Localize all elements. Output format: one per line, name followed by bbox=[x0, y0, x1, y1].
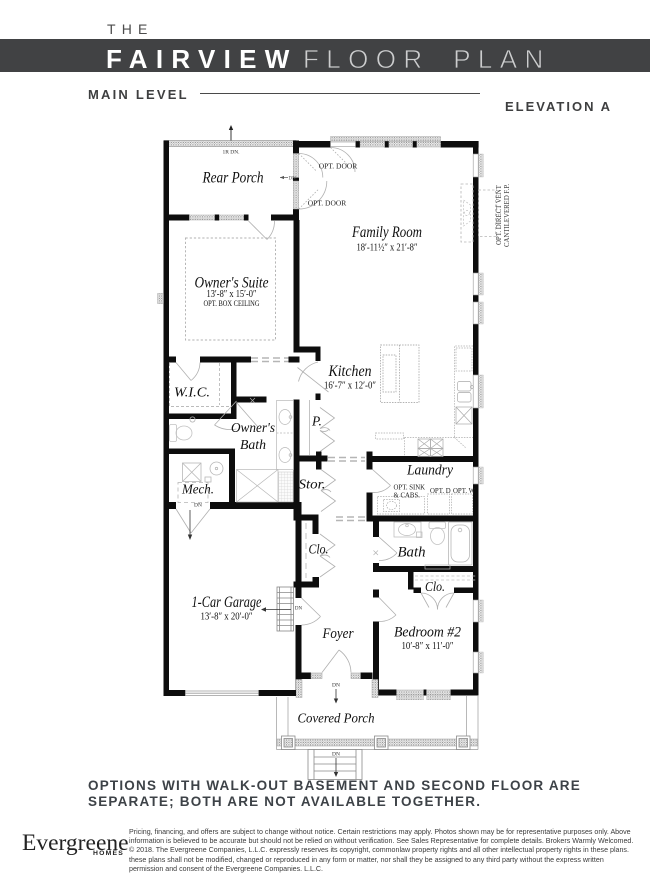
svg-text:Bedroom #2: Bedroom #2 bbox=[394, 625, 461, 641]
svg-text:DN: DN bbox=[332, 752, 340, 758]
svg-text:10′-8″ x 11′-0″: 10′-8″ x 11′-0″ bbox=[402, 641, 454, 652]
svg-text:OPT. BOX CEILING: OPT. BOX CEILING bbox=[204, 299, 260, 308]
svg-text:OPT. DOOR: OPT. DOOR bbox=[319, 162, 358, 171]
svg-text:Mech.: Mech. bbox=[181, 482, 214, 497]
svg-text:OPT. DOOR: OPT. DOOR bbox=[308, 199, 347, 208]
svg-text:Foyer: Foyer bbox=[322, 626, 354, 642]
svg-text:OPT. W: OPT. W bbox=[453, 488, 476, 495]
svg-text:16′-7″ x 12′-0″: 16′-7″ x 12′-0″ bbox=[324, 381, 376, 392]
svg-text:OPT. SINK: OPT. SINK bbox=[394, 485, 426, 492]
svg-text:& CABS.: & CABS. bbox=[394, 493, 421, 500]
svg-text:DN: DN bbox=[289, 177, 297, 182]
svg-text:1-Car Garage: 1-Car Garage bbox=[192, 594, 262, 611]
svg-text:DN: DN bbox=[295, 607, 303, 612]
svg-text:CANTILEVERED F.P.: CANTILEVERED F.P. bbox=[504, 184, 511, 247]
svg-text:Family Room: Family Room bbox=[351, 224, 422, 241]
svg-text:Rear Porch: Rear Porch bbox=[202, 170, 264, 187]
svg-text:Bath: Bath bbox=[240, 437, 266, 452]
svg-text:Clo.: Clo. bbox=[309, 542, 329, 557]
svg-text:DN: DN bbox=[332, 683, 340, 689]
svg-text:Clo.: Clo. bbox=[425, 579, 445, 594]
svg-text:18′-11½″ x 21′-8″: 18′-11½″ x 21′-8″ bbox=[357, 243, 418, 254]
svg-text:Stor.: Stor. bbox=[299, 477, 326, 492]
svg-text:W.I.C.: W.I.C. bbox=[174, 385, 210, 400]
svg-text:Owner's: Owner's bbox=[231, 420, 275, 435]
svg-text:13′-8″ x 20′-0″: 13′-8″ x 20′-0″ bbox=[201, 612, 253, 623]
svg-text:Covered Porch: Covered Porch bbox=[298, 711, 375, 726]
svg-text:Laundry: Laundry bbox=[406, 463, 453, 479]
svg-text:1R DN.: 1R DN. bbox=[222, 150, 240, 156]
svg-text:OPT. DIRECT VENT: OPT. DIRECT VENT bbox=[496, 184, 503, 245]
svg-text:P.: P. bbox=[311, 414, 322, 429]
svg-text:OPT. D: OPT. D bbox=[430, 488, 451, 495]
svg-text:Kitchen: Kitchen bbox=[328, 363, 372, 380]
svg-text:DN: DN bbox=[194, 503, 202, 509]
svg-text:Bath: Bath bbox=[398, 545, 426, 561]
